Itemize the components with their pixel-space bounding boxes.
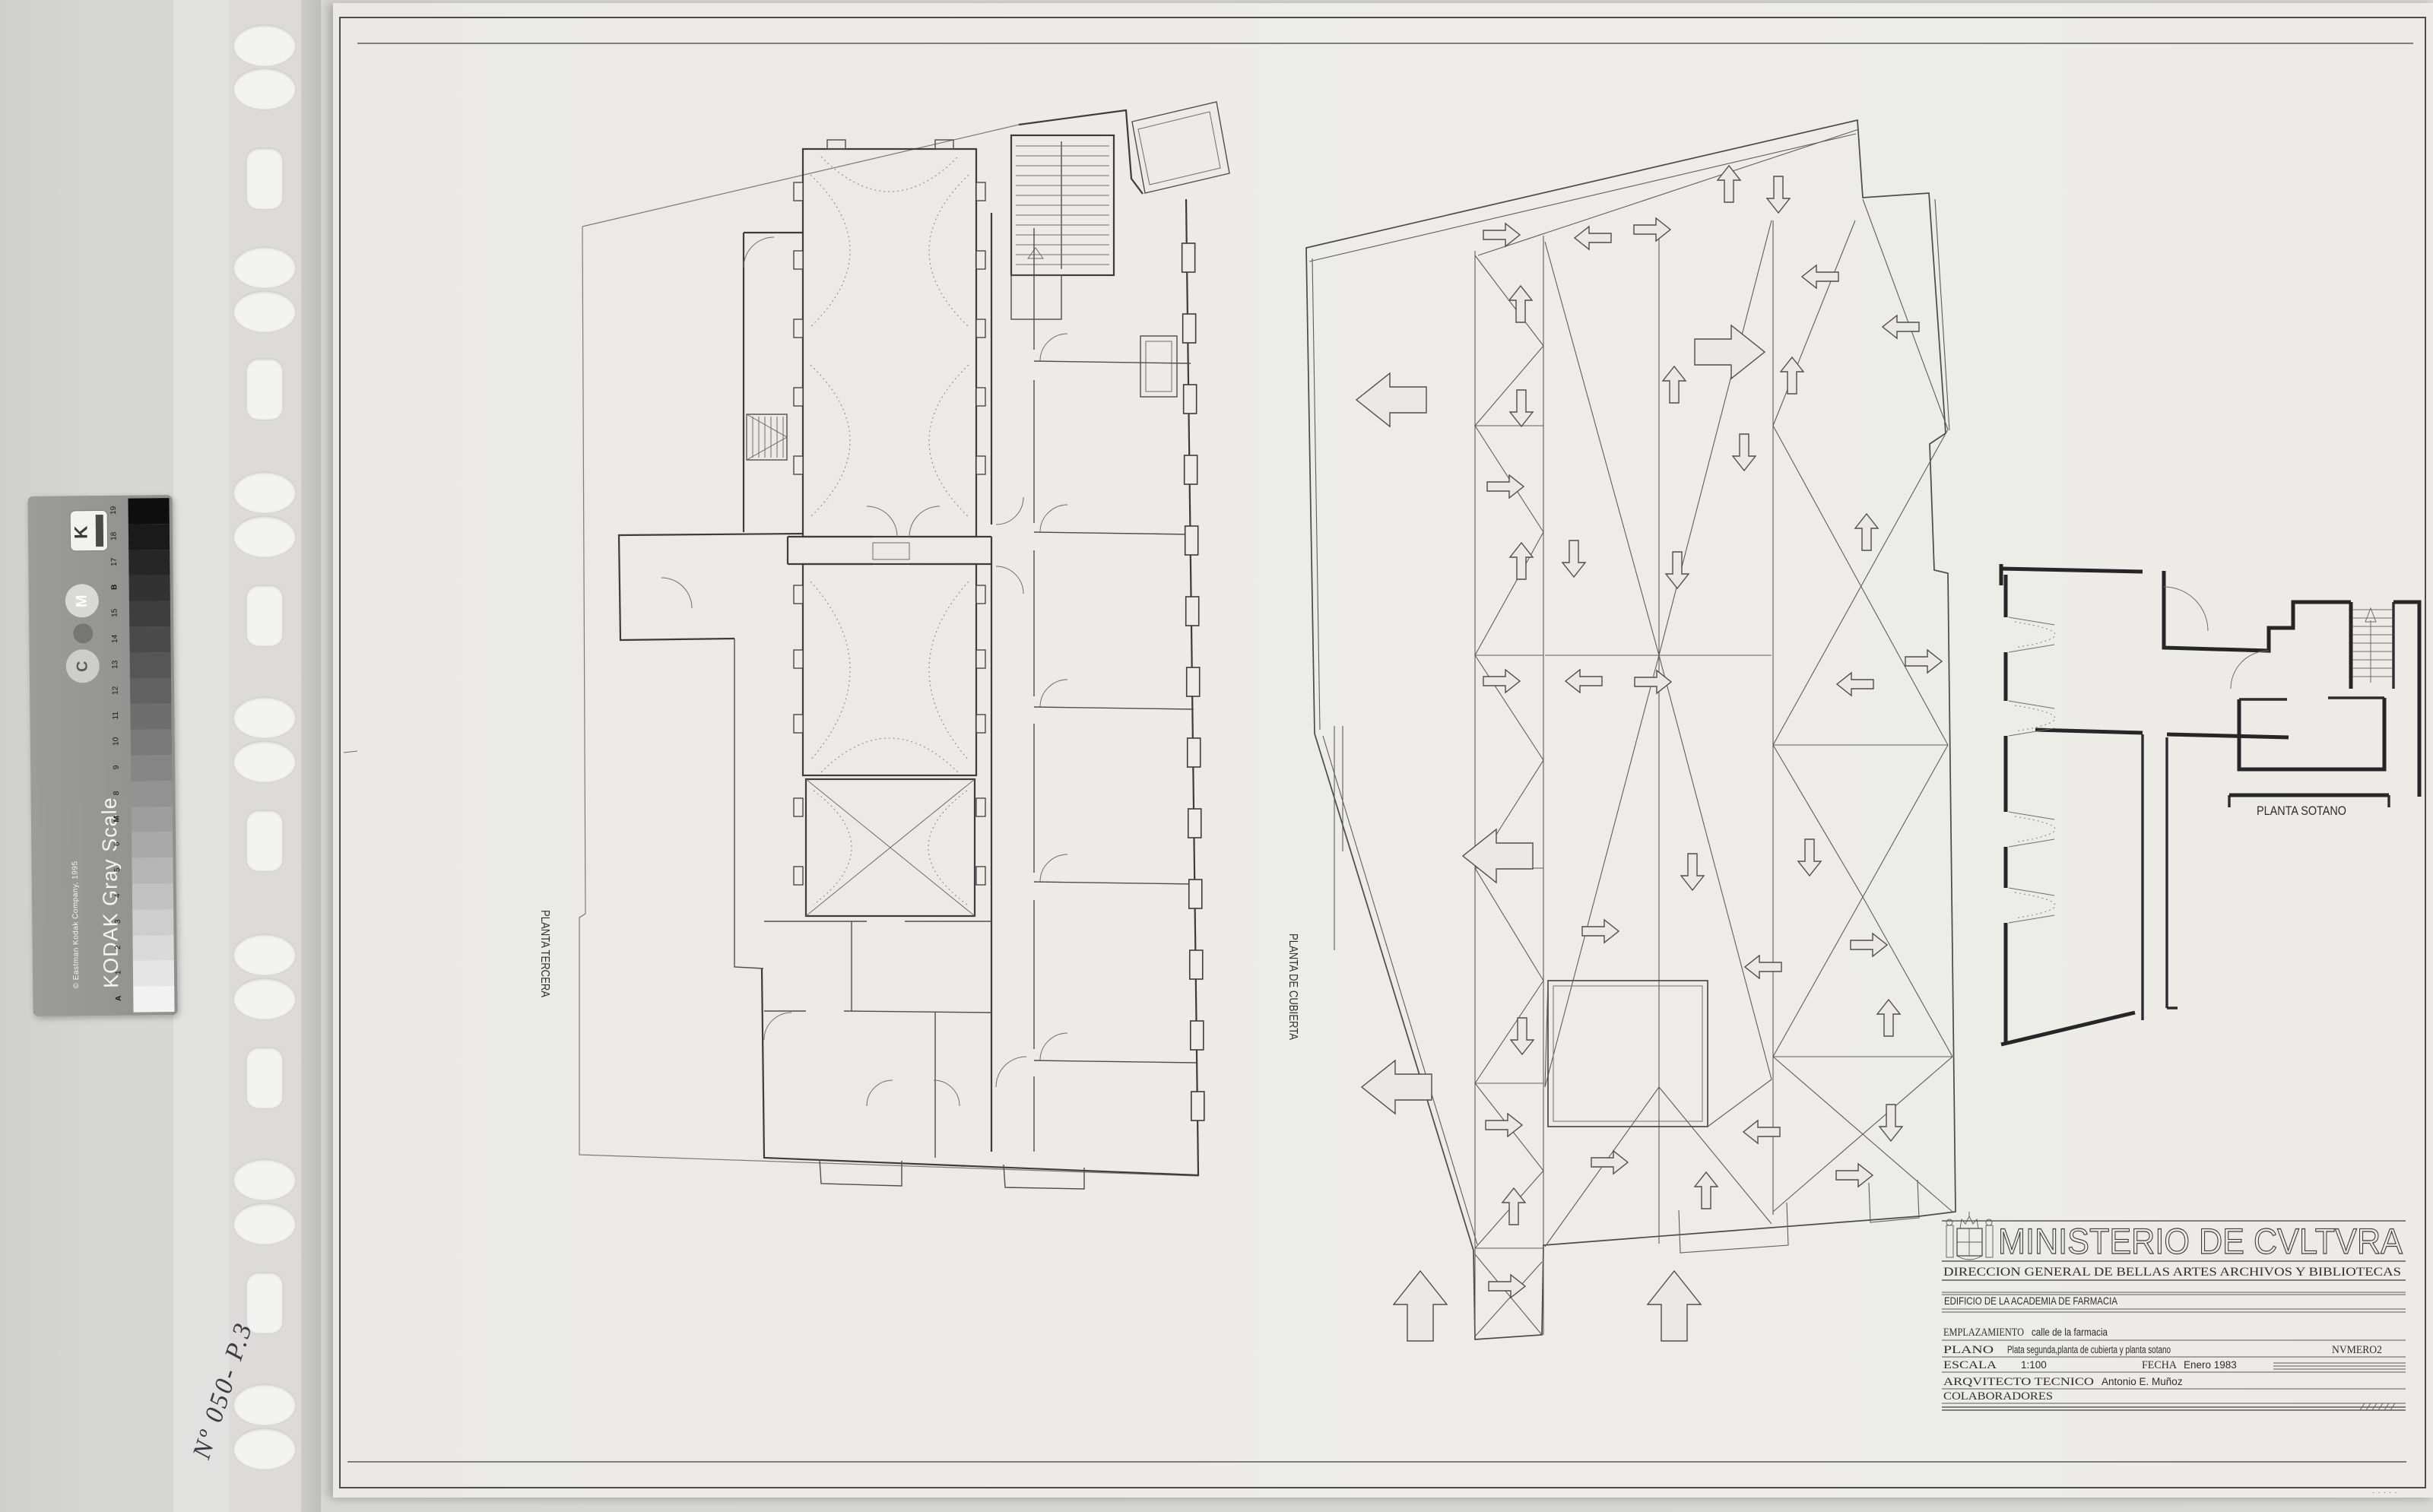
sleeve-punch-hole [233, 697, 296, 738]
slope-arrow-r [1905, 650, 1942, 673]
escala-value: 1:100 [2021, 1359, 2047, 1371]
slope-arrow-d [1798, 839, 1821, 876]
pilaster [976, 650, 985, 668]
gray-scale-patch [131, 729, 172, 756]
pilaster [794, 798, 803, 816]
slope-arrow-l [1802, 265, 1838, 288]
slope-arrow-l [1743, 1121, 1780, 1143]
slope-arrow-r [1836, 1164, 1873, 1187]
sleeve-punch-hole [233, 516, 296, 557]
label-planta-cubierta: PLANTA DE CUBIERTA [1286, 934, 1299, 1041]
facade-windows [1182, 243, 1204, 1121]
window-tick [1189, 880, 1202, 908]
sleeve-punch-hole [233, 1159, 296, 1200]
slope-arrow-d [1681, 854, 1704, 890]
gray-scale-patch [133, 986, 174, 1013]
gray-scale-step-label: 4 [113, 884, 122, 907]
slope-arrow-d [1510, 390, 1533, 426]
slope-arrow-l [1362, 1060, 1432, 1114]
slope-arrow-u [1877, 1000, 1900, 1036]
gray-scale-step-label: 11 [112, 705, 120, 727]
sleeve-punch-hole [246, 585, 283, 646]
window-tick [1188, 738, 1201, 767]
pilaster [976, 182, 985, 201]
pilaster [794, 456, 803, 474]
sleeve-punch-hole [246, 1048, 283, 1108]
window-tick [1188, 809, 1201, 838]
gray-scale-patch [130, 678, 171, 705]
gray-scale-patch [131, 781, 172, 807]
pilaster [794, 867, 803, 885]
gray-scale-step-label: 1 [114, 962, 122, 984]
sleeve-punch-hole [233, 978, 296, 1019]
pilaster [976, 456, 985, 474]
window-tick [1185, 526, 1198, 555]
slope-arrow-l [1356, 373, 1426, 426]
gray-scale-step-label: 8 [113, 781, 121, 804]
pilaster [976, 798, 985, 816]
window-tick [1184, 385, 1197, 414]
pilaster [794, 251, 803, 269]
escala-label: ESCALA [1943, 1359, 1997, 1371]
title-block: MINISTERIO DE CVLTVRA DIRECCION GENERAL … [1942, 1212, 2406, 1410]
sleeve-punch-hole [246, 148, 283, 209]
pilaster [976, 251, 985, 269]
ministry-title: MINISTERIO DE CVLTVRA [1998, 1221, 2403, 1261]
slope-arrow-d [1511, 1018, 1534, 1054]
gray-scale-patch [130, 703, 171, 730]
gray-scale-step-label: 2 [114, 936, 122, 959]
pilaster [794, 650, 803, 668]
gray-scale-patch [132, 935, 173, 962]
slope-arrow-d [1562, 540, 1585, 577]
slope-arrow-r [1634, 218, 1670, 241]
gray-scale-patch [128, 498, 169, 525]
sleeve-punch-hole [246, 359, 283, 420]
sleeve-punch-hole [233, 68, 296, 109]
staircase [753, 417, 783, 458]
dot-patch-icon [73, 623, 93, 643]
kodak-logo-icon: K [71, 511, 108, 550]
cyan-patch-icon: C [66, 649, 100, 683]
plano-value: Plata segunda,planta de cubierta y plant… [2007, 1344, 2171, 1355]
pilaster [794, 585, 803, 604]
slope-arrow-r [1486, 1114, 1522, 1136]
window-tick [1183, 314, 1196, 343]
gray-scale-patch [133, 960, 174, 987]
gray-scale-patch [132, 909, 173, 936]
spain-coat-of-arms-icon [1946, 1212, 1993, 1260]
slope-arrow-d [1767, 176, 1790, 213]
emplazamiento-value: calle de la farmacia [2032, 1327, 2108, 1338]
fecha-label: FECHA [2142, 1359, 2177, 1371]
gray-scale-patch [128, 524, 170, 550]
slope-arrow-u [1855, 514, 1878, 550]
magenta-patch-icon: M [65, 584, 99, 617]
gray-scale-patch [132, 807, 173, 833]
slope-arrow-u [1509, 286, 1532, 322]
building-line: EDIFICIO DE LA ACADEMIA DE FARMACIA [1944, 1295, 2118, 1307]
staircase [1016, 146, 1109, 265]
plano-label: PLANO [1943, 1344, 1994, 1356]
window-tick [1186, 597, 1199, 626]
window-tick [1191, 1021, 1204, 1050]
slope-arrow-u [1510, 543, 1533, 579]
sleeve-punch-hole [233, 291, 296, 332]
slope-arrow-l [1837, 673, 1873, 696]
window-tick [1191, 1092, 1204, 1121]
gray-scale-patches [128, 498, 174, 1013]
slope-arrow-r [1483, 223, 1520, 246]
window-tick [1190, 950, 1203, 979]
drawing-paper: PLANTA TERCERA [333, 3, 2433, 1498]
gray-scale-step-label: 12 [111, 679, 119, 702]
planta-cubierta-drawing: PLANTA DE CUBIERTA [1286, 120, 1956, 1341]
slope-arrow-r [1635, 670, 1671, 693]
gray-scale-step-label: 13 [111, 653, 119, 676]
roof-slope-arrows [1356, 166, 1942, 1341]
gray-scale-step-label: 9 [113, 756, 121, 778]
colaboradores-label: COLABORADORES [1943, 1390, 2053, 1403]
gray-scale-patch [132, 857, 173, 884]
gray-scale-patch [128, 550, 170, 576]
gray-scale-patch [129, 575, 170, 601]
pilaster [976, 867, 985, 885]
slope-arrow-u [1502, 1188, 1525, 1225]
slope-arrow-d [1879, 1105, 1902, 1141]
slope-arrow-u [1781, 357, 1803, 394]
sleeve-crease [301, 0, 321, 1512]
gray-scale-step-label: 3 [114, 910, 122, 933]
kodak-gray-scale-card: K M C KODAK Gray Scale © Eastman Kodak C… [27, 495, 177, 1016]
slope-arrow-l [1565, 670, 1602, 693]
pilaster [976, 388, 985, 406]
gray-scale-step-label: 10 [112, 730, 120, 753]
slope-arrow-u [1648, 1271, 1701, 1341]
slope-arrow-u [1394, 1271, 1447, 1341]
gray-scale-patch [129, 601, 170, 627]
sleeve-punch-hole [233, 1384, 296, 1425]
basement-staircase [2352, 610, 2392, 677]
slope-arrow-r [1487, 475, 1524, 498]
gray-scale-step-label: 18 [109, 525, 118, 547]
pilaster [794, 319, 803, 338]
gray-scale-step-label: B [110, 576, 119, 599]
sleeve-punch-hole [233, 1203, 296, 1244]
slope-arrow-r [1695, 325, 1765, 379]
gray-scale-patch [131, 755, 172, 781]
gray-scale-copyright: © Eastman Kodak Company, 1995 [71, 861, 81, 988]
arquitecto-label: ARQVITECTO TECNICO [1943, 1376, 2094, 1388]
slope-arrow-u [1718, 166, 1740, 202]
sleeve-fold-band [173, 0, 230, 1512]
slope-arrow-d [1733, 434, 1756, 471]
sleeve-punch-hole [233, 934, 296, 975]
pilaster [794, 182, 803, 201]
gray-scale-patch [132, 832, 173, 858]
slope-arrow-r [1582, 920, 1619, 943]
slope-arrow-r [1483, 670, 1520, 693]
gray-scale-step-label: 14 [111, 627, 119, 650]
window-tick [1185, 455, 1197, 484]
slope-arrow-u [1695, 1172, 1718, 1209]
gray-scale-step-label: 6 [113, 833, 122, 856]
gray-scale-step-label: 15 [110, 601, 119, 624]
gray-scale-patch [132, 883, 173, 910]
numero-value: NVMERO2 [2332, 1344, 2382, 1356]
scanned-drawing-sheet: K M C KODAK Gray Scale © Eastman Kodak C… [0, 0, 2433, 1512]
slope-arrow-r [1851, 934, 1887, 956]
direction-general-line: DIRECCION GENERAL DE BELLAS ARTES ARCHIV… [1943, 1266, 2401, 1279]
gray-scale-step-label: 17 [110, 550, 119, 573]
fecha-value: Enero 1983 [2184, 1359, 2237, 1371]
gray-scale-step-label: 19 [109, 499, 118, 521]
arquitecto-value: Antonio E. Muñoz [2102, 1376, 2183, 1387]
slope-arrow-r [1489, 1275, 1525, 1298]
sleeve-punch-hole [233, 1428, 296, 1469]
slope-arrow-l [1745, 956, 1781, 978]
sleeve-punch-hole [246, 810, 283, 871]
gray-scale-patch [129, 626, 170, 653]
sleeve-punch-hole [233, 741, 296, 782]
pilaster [794, 715, 803, 733]
emplazamiento-label: EMPLAZAMIENTO [1943, 1327, 2024, 1339]
window-tick [1187, 667, 1200, 696]
pilaster [976, 715, 985, 733]
slope-arrow-d [1666, 552, 1689, 588]
sleeve-punch-hole [233, 472, 296, 513]
slope-arrow-u [1663, 366, 1686, 403]
gray-scale-patch [130, 652, 171, 679]
label-planta-sotano: PLANTA SOTANO [2257, 804, 2346, 818]
label-planta-tercera: PLANTA TERCERA [538, 910, 551, 998]
gray-scale-step-label: M [113, 807, 121, 830]
slope-arrow-l [1463, 829, 1533, 883]
pilaster [976, 319, 985, 338]
sleeve-punch-hole [233, 247, 296, 288]
planta-sotano-drawing: PLANTA SOTANO [2000, 564, 2419, 1044]
pilaster [976, 585, 985, 604]
corner-stamp-mark: ····· [2372, 1488, 2400, 1497]
planta-tercera-drawing: PLANTA TERCERA [538, 102, 1229, 1189]
sleeve-punch-hole [233, 25, 296, 66]
slope-arrow-r [1591, 1151, 1628, 1174]
gray-scale-step-label: 5 [113, 858, 122, 881]
pilaster [794, 388, 803, 406]
slope-arrow-l [1575, 227, 1611, 249]
window-tick [1182, 243, 1195, 272]
slope-arrow-l [1883, 315, 1919, 338]
gray-scale-step-label: A [115, 987, 123, 1010]
